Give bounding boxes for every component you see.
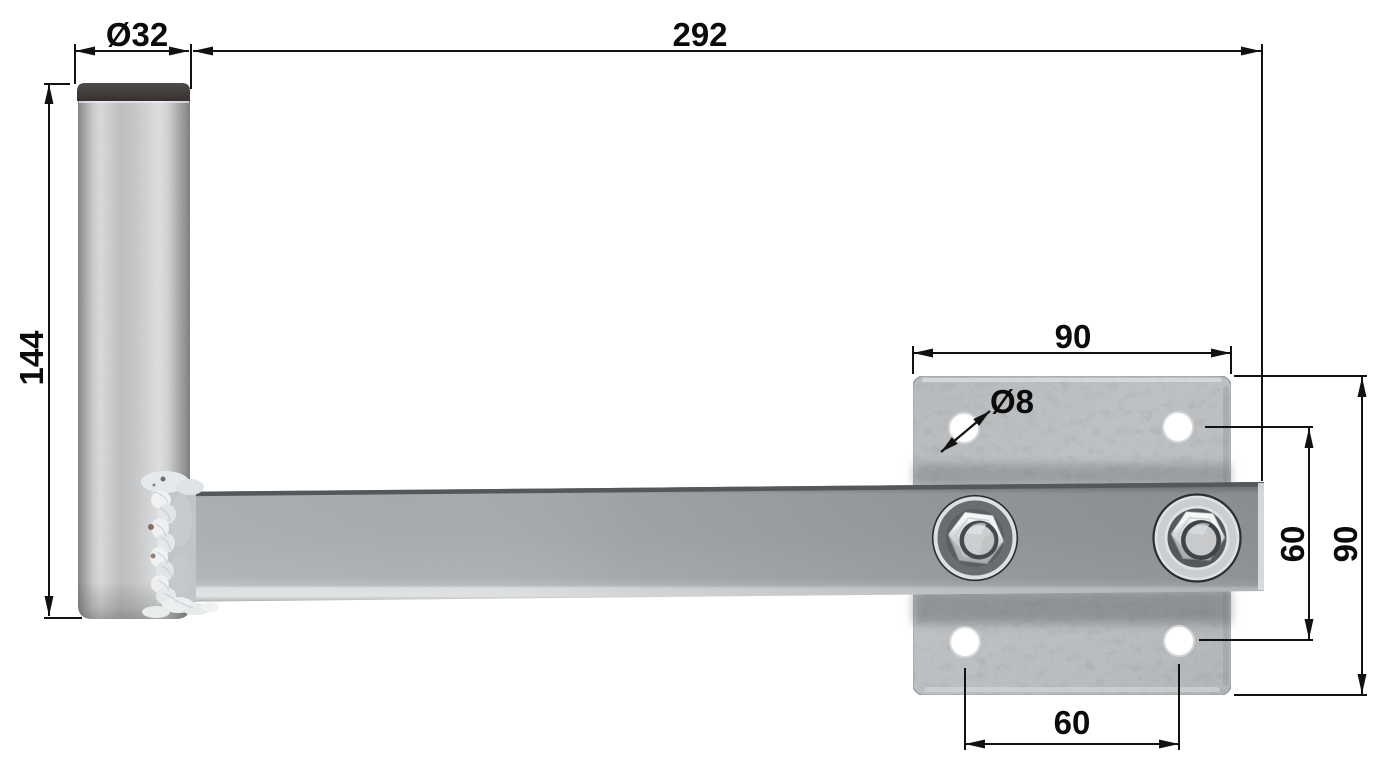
- svg-text:144: 144: [13, 330, 50, 386]
- svg-text:90: 90: [1055, 318, 1092, 355]
- svg-text:Ø32: Ø32: [106, 16, 168, 53]
- svg-text:60: 60: [1054, 704, 1091, 741]
- svg-text:292: 292: [672, 16, 727, 53]
- svg-text:60: 60: [1274, 526, 1311, 563]
- svg-text:90: 90: [1327, 526, 1364, 563]
- svg-text:Ø8: Ø8: [990, 383, 1034, 420]
